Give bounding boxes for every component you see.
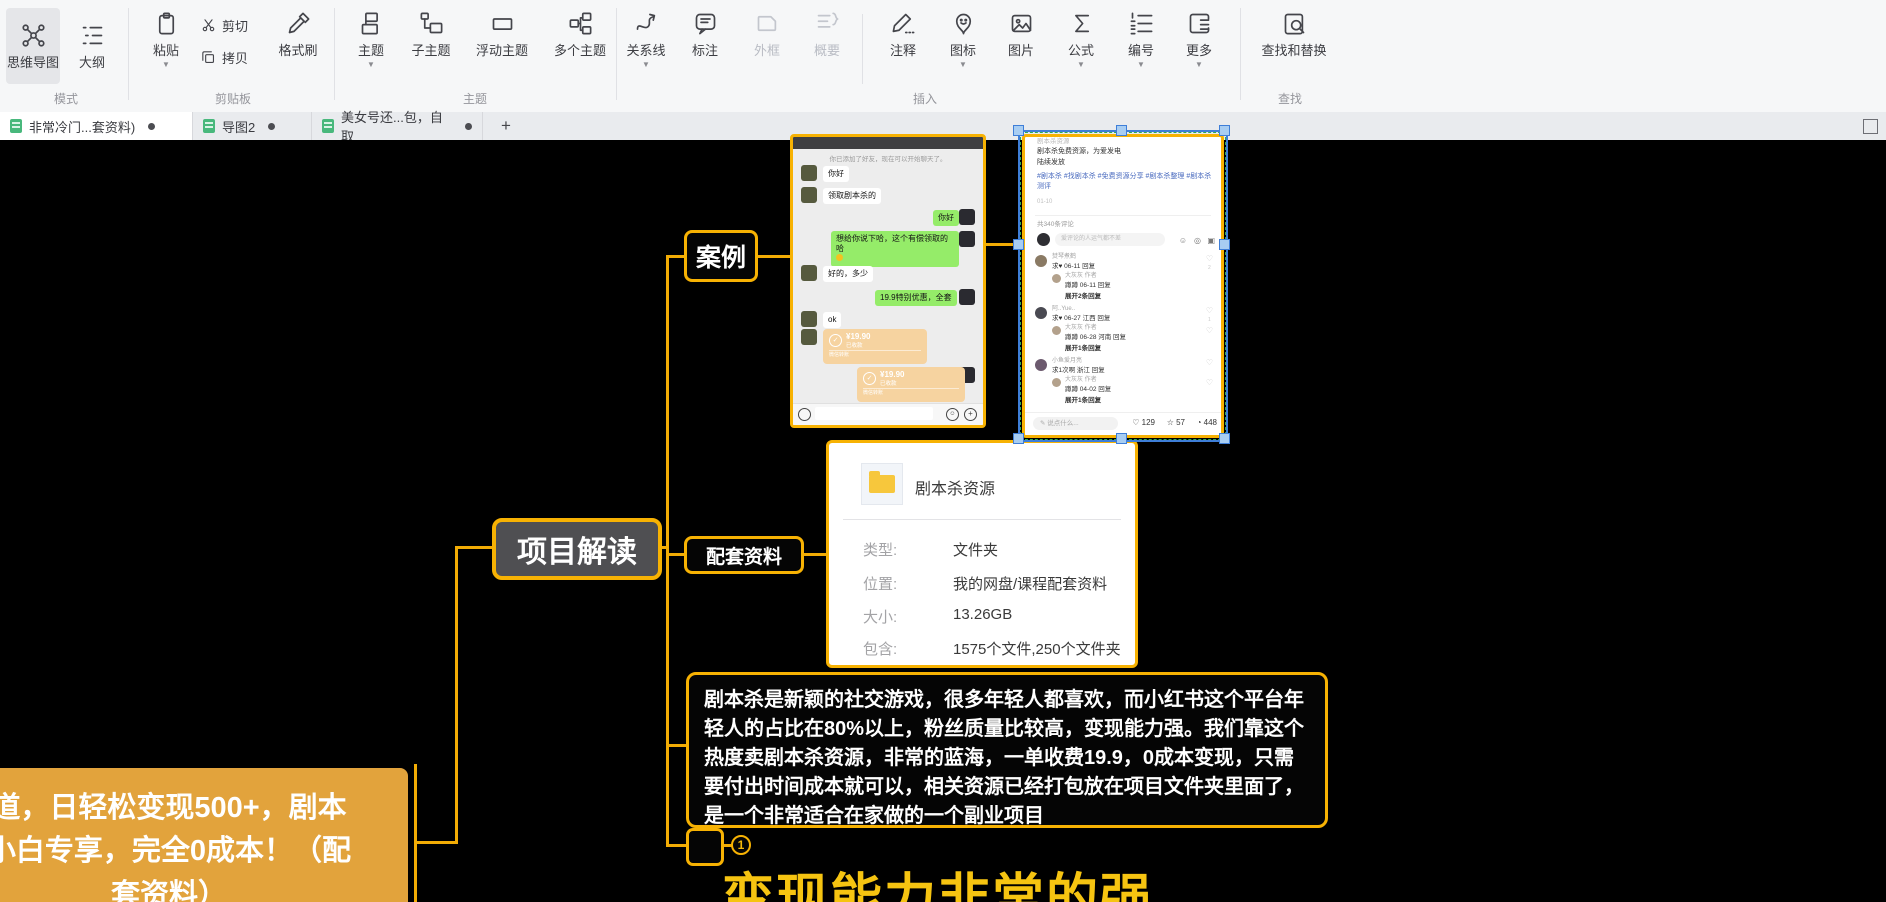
avatar (1035, 359, 1047, 371)
chat-bubble: ok (823, 312, 841, 328)
file-row-label: 位置: (863, 573, 897, 594)
message-input (815, 407, 933, 420)
floating-topic-icon (489, 10, 516, 37)
section-label-clipboard: 剪贴板 (197, 90, 269, 107)
summary-icon (814, 10, 841, 37)
avatar (1052, 326, 1061, 335)
tab-document-1[interactable]: 非常冷门...套资料) (0, 112, 193, 140)
transfer-card: ✓ ¥19.90 已收款 微信转账 (823, 329, 927, 364)
like-icon[interactable]: ♡ (1206, 327, 1213, 335)
new-tab-button[interactable]: + (483, 112, 529, 140)
file-row-value: 我的网盘/课程配套资料 (953, 573, 1107, 594)
chevron-down-icon: ▼ (959, 62, 967, 67)
formula-icon (1068, 10, 1095, 37)
mindmap-mode-label: 思维导图 (7, 52, 59, 71)
post-date: 01-10 (1037, 199, 1052, 206)
reply-text: 蹲蹲 04-02 回复 (1065, 386, 1111, 394)
like-icon[interactable]: ♡2 (1206, 255, 1213, 271)
selection-handle[interactable] (1116, 433, 1127, 444)
topic-node-case[interactable]: 案例 (684, 230, 758, 282)
file-row-label: 包含: (863, 638, 897, 659)
like-icon[interactable]: ♡1 (1206, 307, 1213, 323)
like-icon[interactable]: ♡ (1206, 359, 1213, 367)
file-row-value: 文件夹 (953, 539, 998, 560)
post-body: 陆续发放 (1037, 159, 1065, 167)
group-separator (616, 8, 617, 100)
document-icon (10, 119, 22, 133)
expand-replies-link[interactable]: 展开2条回复 (1065, 293, 1101, 301)
selected-image-node-frame[interactable]: 剧本杀资源 剧本杀免费资源，为爱发电 陆续发放 #剧本杀 #找剧本杀 #免费资源… (1018, 130, 1228, 442)
numbering-button[interactable]: 编号▼ (1114, 10, 1168, 67)
chat-input-bar: ☺ + (793, 403, 983, 425)
multiple-topics-button[interactable]: 多个主题 (544, 10, 616, 59)
app-window: 思维导图 大纲 粘贴▼ 剪切 拷贝 格式刷 主题▼ (0, 0, 1886, 902)
chat-bubble: 你好 (823, 166, 849, 182)
voice-icon (798, 408, 811, 421)
image-node-wechat-chat[interactable]: 你已添加了好友，现在可以开始聊天了。 你好 领取剧本杀的 你好 想给你说下哈，这… (790, 134, 986, 428)
emoji-icon[interactable]: ☺ (1179, 236, 1187, 246)
icon-marker-button[interactable]: 图标▼ (936, 10, 990, 67)
callout-button[interactable]: 标注 (678, 10, 732, 59)
topic-icon (358, 10, 385, 37)
collapsed-topic-node[interactable] (686, 828, 724, 866)
avatar (1052, 378, 1061, 387)
emoji-icon: ☺ (946, 408, 959, 421)
avatar (801, 311, 817, 327)
check-icon: ✓ (863, 372, 876, 385)
check-icon: ✓ (829, 334, 842, 347)
selection-handle[interactable] (1013, 239, 1024, 250)
file-row-label: 类型: (863, 539, 897, 560)
topic-node-materials[interactable]: 配套资料 (684, 536, 804, 574)
folder-thumbnail (861, 463, 903, 505)
document-icon (322, 119, 334, 133)
comment-author: 阿..Yue.. (1052, 306, 1075, 313)
summary-button[interactable]: 概要 (800, 10, 854, 59)
avatar (959, 231, 975, 247)
outline-mode-button[interactable]: 大纲 (66, 8, 118, 84)
multiple-topics-icon (567, 10, 594, 37)
group-separator (334, 8, 335, 100)
unsaved-dot (148, 123, 155, 130)
avatar (801, 329, 817, 345)
connector (414, 841, 458, 844)
format-painter-icon (285, 10, 312, 37)
subtopic-icon (418, 10, 445, 37)
ribbon-toolbar: 思维导图 大纲 粘贴▼ 剪切 拷贝 格式刷 主题▼ (0, 0, 1886, 113)
file-row-value: 13.26GB (953, 606, 1012, 623)
at-icon[interactable]: ◎ (1194, 236, 1201, 246)
system-message: 你已添加了好友，现在可以开始聊天了。 (793, 153, 983, 163)
folder-icon (869, 475, 895, 493)
unsaved-dot (465, 123, 472, 130)
comment-text: 求1次啊 浙江 回复 (1052, 367, 1105, 375)
avatar (1052, 274, 1061, 283)
section-label-find: 查找 (1254, 90, 1326, 107)
collect-count[interactable]: ☆ 57 (1167, 418, 1185, 427)
like-icon[interactable]: ♡ (1206, 379, 1213, 387)
divider (1035, 215, 1211, 216)
mindmap-mode-button[interactable]: 思维导图 (6, 8, 60, 84)
avatar (959, 209, 975, 225)
group-separator (1240, 8, 1241, 100)
section-label-insert: 插入 (889, 90, 961, 107)
comment-box[interactable]: ✎ 说点什么... (1033, 417, 1118, 430)
chat-bubble: 想给你说下哈，这个有偿领取的哈 (831, 231, 959, 267)
cut-button[interactable]: 剪切 (200, 16, 248, 35)
subtopic-button[interactable]: 子主题 (402, 10, 460, 59)
chat-bubble: 你好 (933, 210, 959, 226)
note-button[interactable]: 注释 (876, 10, 930, 59)
post-body: 剧本杀免费资源，为爱发电 (1037, 148, 1121, 156)
comment-count[interactable]: ◔ 448 (1197, 418, 1217, 427)
connector (754, 255, 790, 258)
reply-author: 大灰灰 作者 (1065, 325, 1097, 332)
format-painter-button[interactable]: 格式刷 (268, 10, 328, 59)
expand-replies-link[interactable]: 展开1条回复 (1065, 345, 1101, 353)
cut-icon (200, 17, 217, 34)
plus-icon: + (964, 408, 977, 421)
selection-handle[interactable] (1116, 125, 1127, 136)
reply-text: 蹲蹲 06-11 回复 (1065, 282, 1111, 290)
copy-button[interactable]: 拷贝 (200, 48, 248, 67)
chat-bubble: 好的，多少 (823, 266, 873, 282)
document-icon (203, 119, 215, 133)
root-topic-node[interactable]: 道，日轻松变现500+，剧本 小白专享，完全0成本！（配 套资料） (0, 768, 408, 902)
root-topic-text: 道，日轻松变现500+，剧本 小白专享，完全0成本！（配 套资料） (0, 787, 351, 902)
chevron-down-icon: ▼ (162, 62, 170, 67)
find-replace-icon (1281, 10, 1308, 37)
selection-handle[interactable] (1219, 125, 1230, 136)
image-icon[interactable]: ▣ (1207, 236, 1215, 246)
file-title: 剧本杀资源 (915, 475, 995, 499)
note-icon (890, 10, 917, 37)
avatar (1037, 233, 1050, 246)
reply-text: 蹲蹲 06-28 河南 回复 (1065, 334, 1126, 342)
hashtags[interactable]: #剧本杀 #找剧本杀 #免费资源分享 #剧本杀整理 #剧本杀 (1037, 173, 1211, 181)
emoji-icon (836, 254, 843, 261)
avatar (801, 187, 817, 203)
post-action-bar: ✎ 说点什么... ♡ 129 ☆ 57 ◔ 448 (1025, 412, 1221, 435)
reply-author: 大灰灰 作者 (1065, 377, 1097, 384)
avatar (1035, 255, 1047, 267)
comment-text: 求♥ 06-11 回复 (1052, 263, 1095, 271)
chevron-down-icon: ▼ (1195, 62, 1203, 67)
tab-list-button[interactable] (1863, 112, 1886, 140)
file-info-card-node[interactable]: 剧本杀资源 类型: 文件夹 位置: 我的网盘/课程配套资料 大小: 13.26G… (826, 440, 1138, 668)
chevron-down-icon: ▼ (642, 62, 650, 67)
comment-input[interactable]: 爱评论的人运气都不差 (1055, 233, 1165, 246)
more-icon (1186, 10, 1213, 37)
smiley-pin-icon (950, 10, 977, 37)
image-icon (1008, 10, 1035, 37)
section-label-mode: 模式 (30, 90, 102, 107)
comment-text: 求♥ 06-27 江西 回复 (1052, 315, 1110, 323)
group-separator (128, 8, 129, 100)
connector (458, 546, 494, 549)
boundary-icon (754, 10, 781, 37)
expand-replies-link[interactable]: 展开1条回复 (1065, 397, 1101, 405)
avatar (801, 265, 817, 281)
reply-author: 大灰灰 作者 (1065, 273, 1097, 280)
unsaved-dot (268, 123, 275, 130)
post-title-cut: 剧本杀资源 (1037, 138, 1070, 146)
boundary-button[interactable]: 外框 (740, 10, 794, 59)
copy-icon (200, 49, 217, 66)
chat-bubble: 19.9特别优惠，全套 (875, 290, 957, 306)
mindmap-icon (20, 22, 47, 49)
selection-handle[interactable] (1013, 433, 1024, 444)
outline-icon (79, 22, 106, 49)
section-label-topic: 主题 (439, 90, 511, 107)
topic-node-project[interactable]: 项目解读 (492, 518, 662, 580)
relation-line-icon (633, 10, 660, 37)
topic-node-paragraph[interactable]: 剧本杀是新颖的社交游戏，很多年轻人都喜欢，而小红书这个平台年轻人的占比在80%以… (686, 672, 1328, 828)
avatar (801, 165, 817, 181)
comment-author: 焚琴煮鹤 (1052, 254, 1076, 261)
find-replace-button[interactable]: 查找和替换 (1248, 10, 1340, 59)
connector (669, 844, 687, 847)
relation-line-button[interactable]: 关系线▼ (618, 10, 674, 67)
tab-document-2[interactable]: 导图2 (193, 112, 312, 140)
window-icon (1863, 119, 1878, 134)
topic-button[interactable]: 主题▼ (346, 10, 396, 67)
more-button[interactable]: 更多▼ (1172, 10, 1226, 67)
image-button[interactable]: 图片 (994, 10, 1048, 59)
formula-button[interactable]: 公式▼ (1054, 10, 1108, 67)
comments-count: 共340条评论 (1037, 221, 1074, 229)
selection-handle[interactable] (1013, 125, 1024, 136)
avatar (959, 289, 975, 305)
file-row-value: 1575个文件,250个文件夹 (953, 638, 1121, 659)
chevron-down-icon: ▼ (1137, 62, 1145, 67)
group-separator (862, 14, 863, 84)
comment-author: 小鱼爱月亮 (1052, 358, 1082, 365)
paste-icon (153, 10, 180, 37)
connector (455, 546, 458, 844)
statusbar-strip (793, 137, 983, 149)
collapse-count-badge[interactable]: 1 (731, 835, 751, 855)
floating-topic-button[interactable]: 浮动主题 (464, 10, 540, 59)
selection-handle[interactable] (1219, 239, 1230, 250)
topic-text-monetization[interactable]: 变现能力非常的强 (722, 856, 1154, 902)
connector (666, 255, 669, 847)
transfer-card: ✓ ¥19.90 已收款 微信转账 (857, 367, 965, 402)
selection-handle[interactable] (1219, 433, 1230, 444)
file-row-label: 大小: (863, 606, 897, 627)
image-node-xhs-post[interactable]: 剧本杀资源 剧本杀免费资源，为爱发电 陆续发放 #剧本杀 #找剧本杀 #免费资源… (1022, 134, 1224, 438)
avatar (1035, 307, 1047, 319)
connector (414, 764, 417, 902)
chevron-down-icon: ▼ (367, 62, 375, 67)
chevron-down-icon: ▼ (1077, 62, 1085, 67)
numbering-icon (1128, 10, 1155, 37)
like-count[interactable]: ♡ 129 (1132, 418, 1155, 427)
callout-icon (692, 10, 719, 37)
paste-button[interactable]: 粘贴▼ (140, 10, 192, 67)
chat-bubble: 领取剧本杀的 (823, 188, 881, 204)
hashtags[interactable]: 测评 (1037, 183, 1051, 191)
divider (843, 519, 1121, 520)
tab-document-3[interactable]: 美女号还...包，自取 (312, 112, 483, 140)
